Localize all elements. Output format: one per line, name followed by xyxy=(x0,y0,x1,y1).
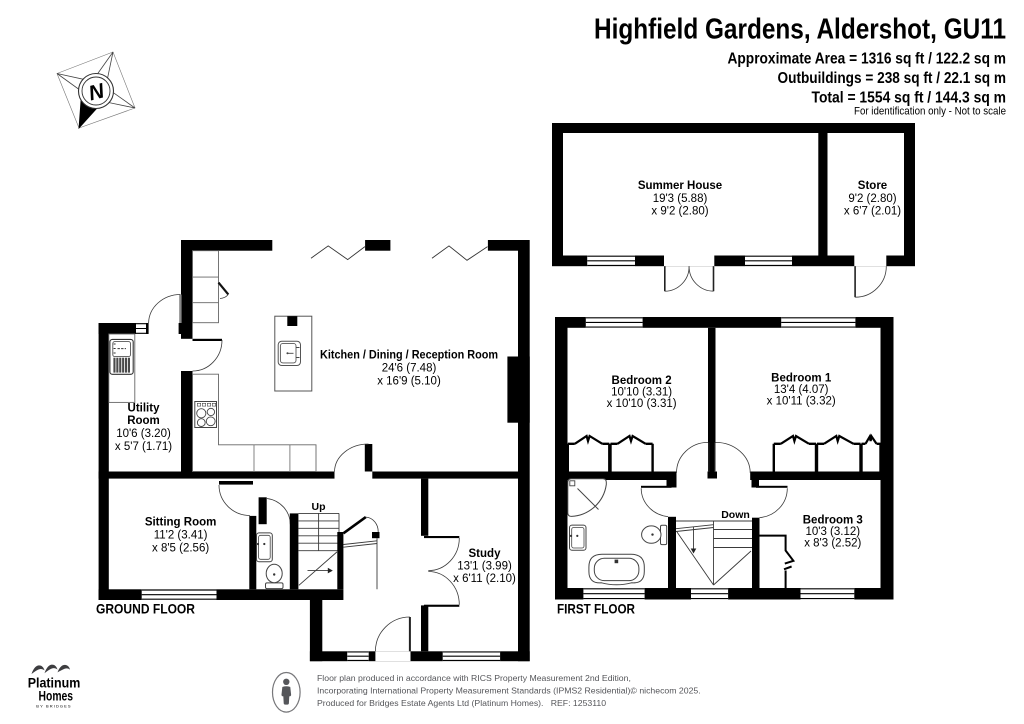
svg-text:Sitting Room: Sitting Room xyxy=(145,517,217,529)
svg-text:Produced for Bridges Estate Ag: Produced for Bridges Estate Agents Ltd (… xyxy=(317,698,606,708)
svg-text:Approximate Area = 1316 sq ft: Approximate Area = 1316 sq ft / 122.2 sq… xyxy=(728,51,1007,68)
svg-text:Utility: Utility xyxy=(128,403,161,415)
svg-text:Outbuildings = 238 sq ft / 22.: Outbuildings = 238 sq ft / 22.1 sq m xyxy=(778,70,1007,87)
svg-text:BY BRIDGES: BY BRIDGES xyxy=(36,704,71,709)
svg-text:For identification only - Not: For identification only - Not to scale xyxy=(854,106,1006,118)
svg-text:Highfield Gardens, Aldershot,: Highfield Gardens, Aldershot, GU11 xyxy=(594,14,1006,46)
svg-text:Bedroom 3: Bedroom 3 xyxy=(803,515,863,527)
svg-text:24'6 (7.48): 24'6 (7.48) xyxy=(382,363,437,375)
svg-text:© nichecom 2025.: © nichecom 2025. xyxy=(631,686,701,696)
svg-text:10'10 (3.31): 10'10 (3.31) xyxy=(611,387,672,399)
svg-text:Bedroom 1: Bedroom 1 xyxy=(771,373,832,385)
svg-text:9'2 (2.80): 9'2 (2.80) xyxy=(848,193,896,205)
svg-text:GROUND FLOOR: GROUND FLOOR xyxy=(96,601,195,617)
svg-text:x 5'7 (1.71): x 5'7 (1.71) xyxy=(115,441,172,453)
svg-text:Total = 1554 sq ft / 144.3 sq: Total = 1554 sq ft / 144.3 sq m xyxy=(812,90,1007,107)
svg-text:Up: Up xyxy=(312,501,326,513)
svg-text:13'1 (3.99): 13'1 (3.99) xyxy=(457,561,512,573)
svg-text:x 9'2 (2.80): x 9'2 (2.80) xyxy=(651,206,708,218)
svg-text:x 8'5 (2.56): x 8'5 (2.56) xyxy=(152,543,209,555)
svg-text:10'6 (3.20): 10'6 (3.20) xyxy=(116,428,171,440)
svg-text:Floor plan produced in accorda: Floor plan produced in accordance with R… xyxy=(317,673,631,683)
svg-text:Kitchen / Dining / Reception R: Kitchen / Dining / Reception Room xyxy=(320,350,498,362)
svg-text:x 10'11 (3.32): x 10'11 (3.32) xyxy=(767,396,836,408)
svg-text:x 6'7 (2.01): x 6'7 (2.01) xyxy=(844,206,901,218)
svg-text:Summer House: Summer House xyxy=(638,180,722,192)
svg-text:Room: Room xyxy=(127,415,160,427)
svg-text:x 8'3 (2.52): x 8'3 (2.52) xyxy=(804,538,861,550)
svg-text:Homes: Homes xyxy=(39,689,74,704)
svg-text:Bedroom 2: Bedroom 2 xyxy=(612,375,672,387)
svg-text:Down: Down xyxy=(721,509,750,521)
svg-text:Study: Study xyxy=(469,548,502,560)
svg-text:19'3 (5.88): 19'3 (5.88) xyxy=(653,193,708,205)
svg-text:x 10'10 (3.31): x 10'10 (3.31) xyxy=(607,398,677,410)
svg-text:Store: Store xyxy=(858,180,887,192)
svg-text:11'2 (3.41): 11'2 (3.41) xyxy=(154,530,208,542)
svg-text:10'3 (3.12): 10'3 (3.12) xyxy=(805,526,860,538)
svg-text:13'4 (4.07): 13'4 (4.07) xyxy=(774,384,829,396)
svg-text:x 6'11 (2.10): x 6'11 (2.10) xyxy=(453,573,516,585)
svg-text:Incorporating International Pr: Incorporating International Property Mea… xyxy=(317,686,633,696)
svg-text:x 16'9 (5.10): x 16'9 (5.10) xyxy=(377,376,441,388)
svg-text:FIRST FLOOR: FIRST FLOOR xyxy=(557,601,635,617)
